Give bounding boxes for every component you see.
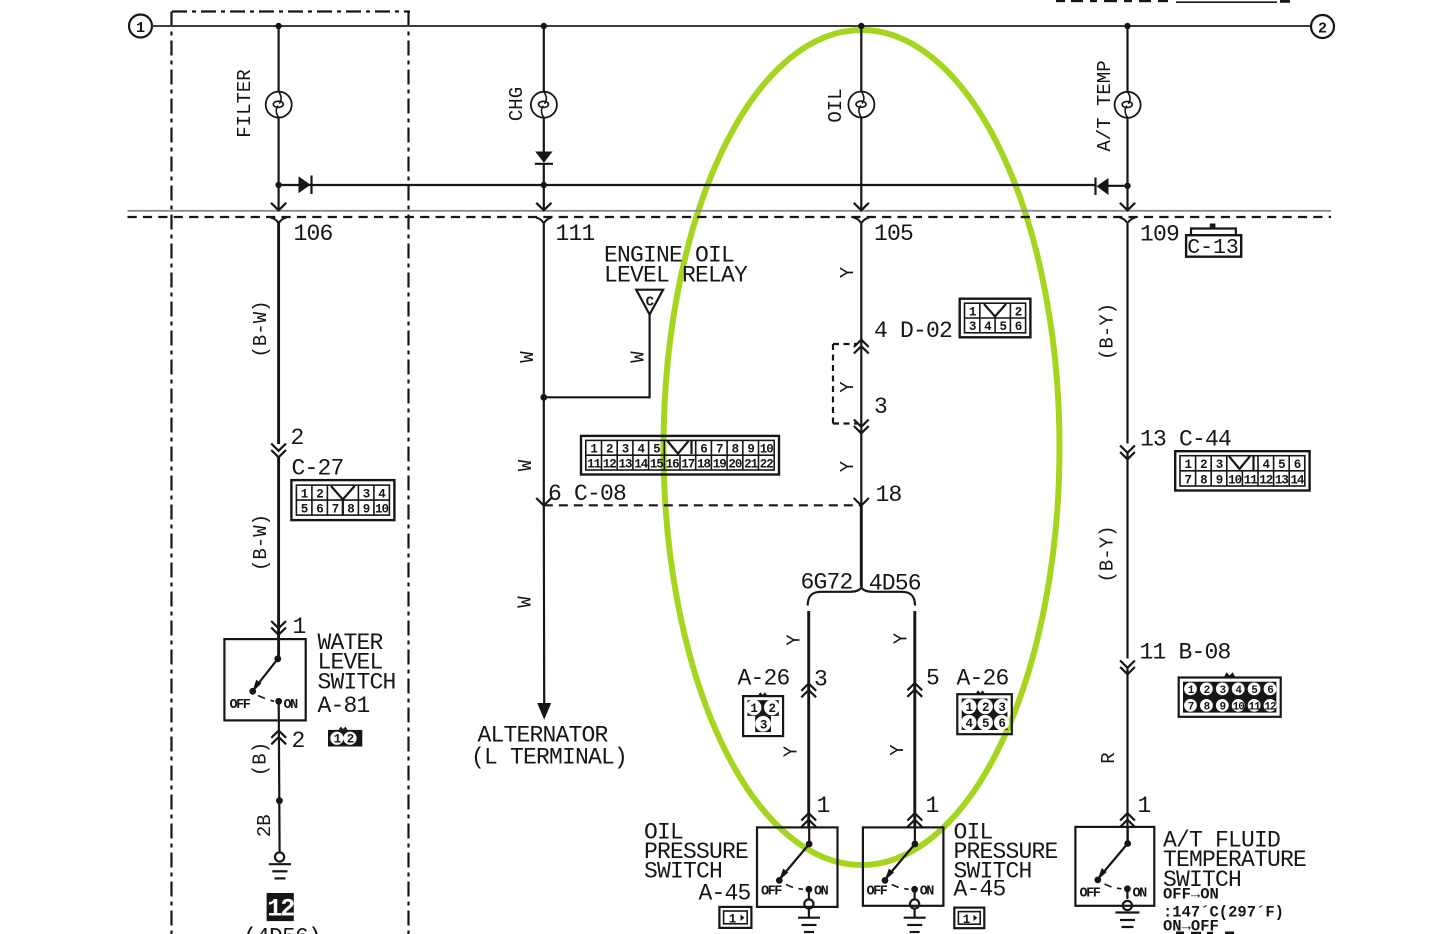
svg-text:7: 7 xyxy=(716,443,723,457)
svg-text:8: 8 xyxy=(732,443,739,457)
svg-text:1: 1 xyxy=(301,488,308,502)
svg-text:9: 9 xyxy=(1219,701,1225,713)
svg-text:12: 12 xyxy=(267,895,294,924)
svg-text:1: 1 xyxy=(969,305,976,319)
svg-text:11: 11 xyxy=(587,457,601,471)
svg-text:R: R xyxy=(1098,752,1120,763)
svg-text:FILTER: FILTER xyxy=(234,69,256,137)
svg-text:W: W xyxy=(628,351,650,363)
svg-text:C-27: C-27 xyxy=(292,455,344,481)
svg-text:6: 6 xyxy=(316,503,323,517)
svg-text:(B-Y): (B-Y) xyxy=(1097,303,1119,360)
svg-text:19: 19 xyxy=(713,457,727,471)
svg-text:2B: 2B xyxy=(254,814,276,837)
svg-text:5: 5 xyxy=(926,666,939,692)
svg-text:W: W xyxy=(515,596,537,608)
svg-text:5: 5 xyxy=(982,717,989,731)
svg-text:2: 2 xyxy=(982,701,989,715)
svg-text:(B-W): (B-W) xyxy=(250,300,272,357)
svg-text:(B-W): (B-W) xyxy=(250,514,272,571)
svg-text:22: 22 xyxy=(760,457,774,471)
svg-text:W: W xyxy=(517,351,539,363)
svg-text:A/T TEMP: A/T TEMP xyxy=(1094,60,1116,151)
svg-text:A-26: A-26 xyxy=(957,666,1009,692)
svg-text:A-26: A-26 xyxy=(738,665,790,691)
svg-text:13: 13 xyxy=(1275,473,1289,487)
svg-text:1: 1 xyxy=(926,793,939,819)
svg-text:A-45: A-45 xyxy=(954,877,1006,903)
svg-text:6: 6 xyxy=(998,717,1005,731)
svg-text:1: 1 xyxy=(1185,458,1192,472)
svg-text:OIL: OIL xyxy=(825,88,847,122)
svg-text:3: 3 xyxy=(1216,458,1223,472)
svg-text:9: 9 xyxy=(1216,473,1223,487)
svg-text:5: 5 xyxy=(1278,458,1285,472)
svg-text:10: 10 xyxy=(375,503,389,517)
svg-text:7: 7 xyxy=(1185,473,1192,487)
svg-text:OFF: OFF xyxy=(761,885,782,900)
svg-text:CHG: CHG xyxy=(506,87,528,121)
svg-text:ON→OFF: ON→OFF xyxy=(1163,918,1219,934)
svg-text:2: 2 xyxy=(1015,305,1022,319)
svg-text:2: 2 xyxy=(769,702,776,716)
svg-text:12: 12 xyxy=(603,457,617,471)
svg-text:2: 2 xyxy=(316,488,323,502)
svg-text:1: 1 xyxy=(817,793,830,819)
svg-text:6: 6 xyxy=(700,443,707,457)
svg-text:OFF: OFF xyxy=(867,885,888,900)
svg-text:LEVEL RELAY: LEVEL RELAY xyxy=(604,262,748,288)
svg-text:13 C-44: 13 C-44 xyxy=(1140,426,1231,452)
svg-text:4 D-02: 4 D-02 xyxy=(874,318,952,344)
svg-text:1: 1 xyxy=(729,913,736,927)
svg-text:20: 20 xyxy=(728,457,742,471)
svg-text:3: 3 xyxy=(814,667,827,693)
svg-text:10: 10 xyxy=(1228,473,1242,487)
svg-text:W: W xyxy=(515,459,537,471)
svg-text:Y: Y xyxy=(837,266,859,278)
svg-text:Y: Y xyxy=(784,634,806,646)
svg-text:Y: Y xyxy=(781,745,803,757)
svg-text:12: 12 xyxy=(1259,473,1273,487)
svg-text:C: C xyxy=(646,295,655,311)
svg-text:5: 5 xyxy=(999,320,1006,334)
svg-text:2: 2 xyxy=(292,728,305,754)
svg-text:1: 1 xyxy=(750,702,757,716)
svg-text:(4D56): (4D56) xyxy=(243,925,321,934)
svg-text:7: 7 xyxy=(332,503,339,517)
svg-text:3: 3 xyxy=(969,320,976,334)
svg-text:21: 21 xyxy=(744,457,758,471)
svg-text:10: 10 xyxy=(1233,701,1245,713)
svg-text:1: 1 xyxy=(1138,793,1151,819)
svg-text:14: 14 xyxy=(1290,473,1305,487)
svg-text:2: 2 xyxy=(347,733,354,747)
svg-text:OFF→ON: OFF→ON xyxy=(1163,886,1219,904)
svg-text:12: 12 xyxy=(1264,701,1276,713)
svg-text:8: 8 xyxy=(347,503,354,517)
svg-text:8: 8 xyxy=(1200,473,1207,487)
svg-text:10: 10 xyxy=(760,443,774,457)
svg-text:6: 6 xyxy=(1294,458,1301,472)
svg-text:1: 1 xyxy=(590,443,597,457)
svg-text:17: 17 xyxy=(681,457,695,471)
svg-text:3: 3 xyxy=(622,443,629,457)
svg-text:7: 7 xyxy=(1188,701,1194,713)
svg-text:A-45: A-45 xyxy=(699,881,751,907)
svg-text:14: 14 xyxy=(634,457,649,471)
svg-text:1: 1 xyxy=(963,913,970,927)
svg-text:16: 16 xyxy=(666,457,680,471)
svg-text:3: 3 xyxy=(363,488,370,502)
svg-text:2: 2 xyxy=(1204,685,1210,697)
svg-text:1: 1 xyxy=(136,20,145,37)
svg-text:11 B-08: 11 B-08 xyxy=(1140,640,1231,666)
svg-text:Y: Y xyxy=(837,460,859,472)
svg-text:OFF: OFF xyxy=(230,698,251,713)
svg-text:C-13: C-13 xyxy=(1187,236,1239,260)
svg-text:11: 11 xyxy=(1244,473,1258,487)
svg-text:13: 13 xyxy=(618,457,632,471)
svg-text:11: 11 xyxy=(1248,701,1261,713)
svg-text:(L TERMINAL): (L TERMINAL) xyxy=(471,744,627,770)
svg-text:ON: ON xyxy=(1133,887,1148,902)
svg-text:A-81: A-81 xyxy=(318,693,370,719)
svg-text:Y: Y xyxy=(887,744,909,756)
svg-text:ON: ON xyxy=(284,698,299,713)
svg-text:111: 111 xyxy=(556,221,595,247)
svg-text:ON: ON xyxy=(920,885,935,900)
svg-text:15: 15 xyxy=(650,457,664,471)
svg-text:106: 106 xyxy=(294,221,333,247)
svg-text:1: 1 xyxy=(966,701,973,715)
svg-text:3: 3 xyxy=(760,718,767,732)
svg-text:1: 1 xyxy=(293,614,306,640)
svg-text:5: 5 xyxy=(301,503,308,517)
svg-text:Y: Y xyxy=(837,381,859,393)
svg-text:3: 3 xyxy=(998,701,1005,715)
svg-text:18: 18 xyxy=(697,457,711,471)
svg-text:2: 2 xyxy=(1200,458,1207,472)
svg-text:2: 2 xyxy=(1318,21,1327,38)
svg-text:6: 6 xyxy=(1015,320,1022,334)
svg-text:OFF: OFF xyxy=(1080,887,1101,902)
svg-text:6 C-08: 6 C-08 xyxy=(548,481,626,507)
svg-text:1: 1 xyxy=(334,733,341,747)
svg-text:109: 109 xyxy=(1140,221,1179,247)
svg-text:18: 18 xyxy=(876,482,902,508)
svg-text:ON: ON xyxy=(814,885,829,900)
svg-text:5: 5 xyxy=(653,443,660,457)
svg-text:6: 6 xyxy=(1267,685,1273,697)
svg-text:2: 2 xyxy=(291,425,304,451)
svg-text:SWITCH: SWITCH xyxy=(318,669,396,695)
svg-text:9: 9 xyxy=(747,443,754,457)
svg-text:3: 3 xyxy=(874,394,887,420)
svg-text:105: 105 xyxy=(874,221,913,247)
svg-text:Y: Y xyxy=(891,632,913,644)
svg-text:9: 9 xyxy=(363,503,370,517)
svg-text:(B): (B) xyxy=(250,742,272,776)
svg-text:(B-Y): (B-Y) xyxy=(1097,525,1119,582)
svg-text:2: 2 xyxy=(606,443,613,457)
